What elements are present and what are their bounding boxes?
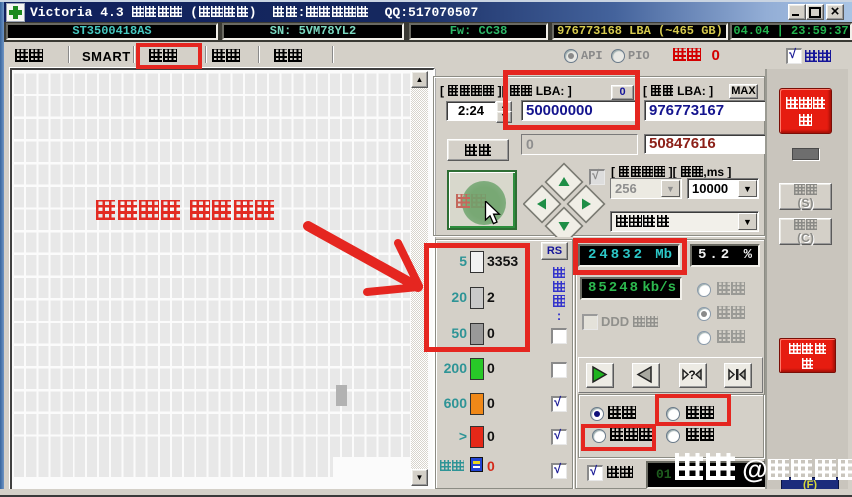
svg-text:?: ? [688, 368, 695, 382]
